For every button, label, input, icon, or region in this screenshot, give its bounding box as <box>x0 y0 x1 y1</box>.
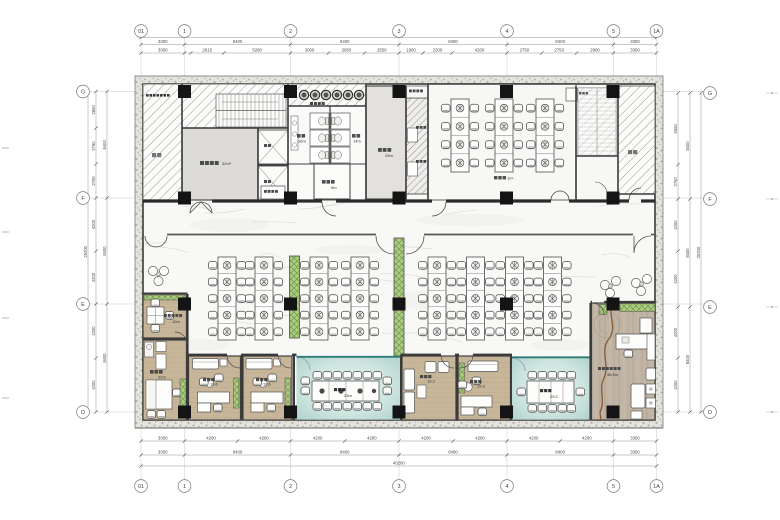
svg-text:8400: 8400 <box>233 450 243 455</box>
svg-text:8400: 8400 <box>233 39 243 44</box>
svg-text:3300: 3300 <box>158 48 168 53</box>
svg-text:5m: 5m <box>331 185 337 190</box>
svg-text:3300: 3300 <box>630 436 640 441</box>
svg-text:5: 5 <box>612 484 615 490</box>
svg-text:8400: 8400 <box>685 248 690 258</box>
svg-text:2: 2 <box>289 484 292 490</box>
svg-text:25200: 25200 <box>696 246 701 258</box>
svg-text:4200: 4200 <box>673 380 678 390</box>
svg-text:G: G <box>81 90 85 96</box>
svg-text:19.6: 19.6 <box>263 382 272 387</box>
svg-text:8400: 8400 <box>102 353 107 363</box>
svg-text:5: 5 <box>612 29 615 35</box>
svg-text:25200: 25200 <box>83 245 88 257</box>
svg-text:3300: 3300 <box>630 450 640 455</box>
svg-text:4200: 4200 <box>529 436 539 441</box>
svg-text:8400: 8400 <box>555 39 565 44</box>
svg-text:2850: 2850 <box>342 48 352 53</box>
svg-text:01: 01 <box>138 29 144 35</box>
svg-text:4200: 4200 <box>313 436 323 441</box>
svg-text:01: 01 <box>138 484 144 490</box>
svg-text:8400: 8400 <box>448 450 458 455</box>
svg-text:4200: 4200 <box>421 436 431 441</box>
svg-text:G: G <box>708 91 712 97</box>
svg-text:19.6: 19.6 <box>210 382 219 387</box>
svg-text:10m: 10m <box>172 319 180 324</box>
svg-text:4200: 4200 <box>673 220 678 230</box>
svg-text:E: E <box>708 305 712 311</box>
svg-text:19.3: 19.3 <box>427 379 436 384</box>
svg-text:4200: 4200 <box>673 274 678 284</box>
svg-text:2900: 2900 <box>590 48 600 53</box>
svg-text:2750: 2750 <box>673 176 678 186</box>
svg-text:8400: 8400 <box>448 39 458 44</box>
svg-text:2750: 2750 <box>91 176 96 186</box>
svg-text:3300: 3300 <box>630 48 640 53</box>
svg-text:40200: 40200 <box>393 461 406 466</box>
svg-text:2550: 2550 <box>377 48 387 53</box>
svg-text:3300: 3300 <box>630 39 640 44</box>
svg-text:10+: 10+ <box>507 176 514 181</box>
svg-text:2790: 2790 <box>91 141 96 151</box>
svg-text:3300: 3300 <box>158 450 168 455</box>
svg-text:4200: 4200 <box>475 48 485 53</box>
svg-text:1: 1 <box>183 484 186 490</box>
svg-text:8400: 8400 <box>102 139 107 149</box>
svg-text:4200: 4200 <box>582 436 592 441</box>
svg-text:8400: 8400 <box>340 450 350 455</box>
svg-text:3300: 3300 <box>158 436 168 441</box>
svg-text:2615: 2615 <box>203 48 213 53</box>
svg-text:D: D <box>81 410 85 416</box>
svg-text:1A: 1A <box>653 484 660 490</box>
svg-text:8400: 8400 <box>102 246 107 256</box>
svg-text:4200: 4200 <box>367 436 377 441</box>
svg-text:1900: 1900 <box>406 48 416 53</box>
svg-text:4200: 4200 <box>91 380 96 390</box>
svg-text:4200: 4200 <box>673 327 678 337</box>
svg-text:48.5m: 48.5m <box>607 372 619 377</box>
svg-text:29.2: 29.2 <box>550 394 559 399</box>
svg-text:2300: 2300 <box>433 48 443 53</box>
svg-text:5280: 5280 <box>252 48 262 53</box>
svg-text:5650: 5650 <box>673 123 678 133</box>
svg-text:16m: 16m <box>298 139 306 144</box>
svg-text:23m: 23m <box>344 393 352 398</box>
svg-text:4200: 4200 <box>206 436 216 441</box>
svg-text:8400: 8400 <box>685 354 690 364</box>
svg-text:8400: 8400 <box>340 39 350 44</box>
svg-text:2750: 2750 <box>554 48 564 53</box>
svg-text:3000: 3000 <box>305 48 315 53</box>
svg-text:2850: 2850 <box>91 104 96 114</box>
svg-text:4200: 4200 <box>91 272 96 282</box>
svg-text:D: D <box>708 410 712 416</box>
svg-text:4200: 4200 <box>91 219 96 229</box>
svg-text:32m²: 32m² <box>222 161 232 166</box>
svg-text:1: 1 <box>183 29 186 35</box>
svg-text:3: 3 <box>397 484 400 490</box>
svg-text:25m: 25m <box>385 153 393 158</box>
svg-text:14m: 14m <box>353 139 361 144</box>
svg-text:8400: 8400 <box>555 450 565 455</box>
svg-text:4200: 4200 <box>475 436 485 441</box>
svg-text:4: 4 <box>505 29 508 35</box>
svg-text:4200: 4200 <box>259 436 269 441</box>
svg-text:4200: 4200 <box>91 326 96 336</box>
svg-text:2: 2 <box>289 29 292 35</box>
svg-text:1A: 1A <box>653 29 660 35</box>
svg-text:4: 4 <box>505 484 508 490</box>
svg-text:3: 3 <box>397 29 400 35</box>
svg-text:8400: 8400 <box>685 141 690 151</box>
svg-text:22m: 22m <box>158 375 166 380</box>
svg-text:3300: 3300 <box>158 39 168 44</box>
svg-text:2750: 2750 <box>520 48 530 53</box>
svg-text:E: E <box>81 302 85 308</box>
svg-text:19.3: 19.3 <box>477 384 486 389</box>
